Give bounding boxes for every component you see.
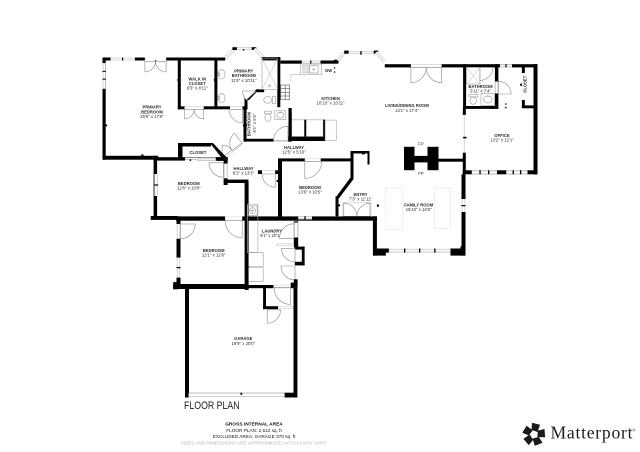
svg-text:12'6" x 10'8": 12'6" x 10'8" [177, 186, 201, 191]
svg-text:Matterport: Matterport [551, 423, 634, 443]
svg-text:19'9" x 20'0": 19'9" x 20'0" [231, 341, 255, 346]
svg-text:12'1" x 12'6": 12'1" x 12'6" [202, 253, 226, 258]
svg-text:26'6" x 17'9": 26'6" x 17'9" [140, 114, 164, 119]
svg-text:6'2" x 13'3": 6'2" x 13'3" [233, 171, 255, 176]
svg-text:13'2" x 12'1": 13'2" x 12'1" [490, 137, 514, 142]
svg-text:8'1" x 5'5": 8'1" x 5'5" [252, 113, 257, 132]
svg-text:11'5" x 10'11": 11'5" x 10'11" [231, 78, 257, 83]
svg-text:7'3" x 11'11": 7'3" x 11'11" [349, 196, 372, 201]
svg-text:GROSS INTERNAL AREA: GROSS INTERNAL AREA [225, 422, 283, 428]
svg-text:CLOSET: CLOSET [190, 150, 207, 155]
svg-text:10'10" x 10'11": 10'10" x 10'11" [317, 100, 346, 105]
svg-text:13'6" x 10'5": 13'6" x 10'5" [298, 190, 322, 195]
svg-text:12'5" x 5'10": 12'5" x 5'10" [282, 150, 306, 155]
svg-text:FLOOR PLAN: FLOOR PLAN [184, 400, 240, 412]
svg-text:6'5" x 8'11": 6'5" x 8'11" [187, 86, 208, 91]
svg-text:CLOSET: CLOSET [522, 75, 527, 92]
svg-text:FP: FP [418, 142, 424, 147]
svg-text:5'11" x 7'4": 5'11" x 7'4" [470, 88, 491, 93]
svg-text:13'1" x 17'4": 13'1" x 17'4" [395, 108, 419, 113]
svg-text:DW: DW [325, 68, 332, 73]
svg-text:SIZES AND DIMENSIONS ARE APPRO: SIZES AND DIMENSIONS ARE APPROXIMATE, AC… [181, 441, 328, 446]
svg-text:15'10" x 16'5": 15'10" x 16'5" [406, 207, 432, 212]
svg-text:®: ® [632, 428, 636, 433]
svg-text:FP: FP [418, 171, 424, 176]
svg-text:FLOOR PLAN: 2,512 sq. ft: FLOOR PLAN: 2,512 sq. ft [226, 428, 282, 433]
svg-text:EXCLUDED AREA: GARAGE 370 sq.: EXCLUDED AREA: GARAGE 370 sq. ft [213, 434, 296, 439]
